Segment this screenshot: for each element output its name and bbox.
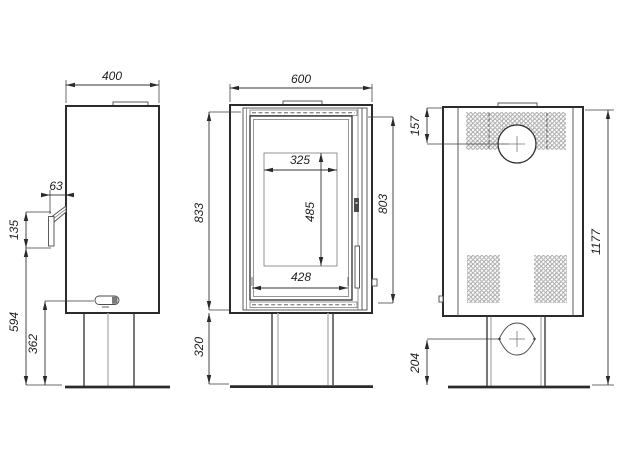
front-hinge-nub [372,279,377,286]
dim-back-total-height: 1177 [589,228,603,255]
dim-side-width-group: 400 [66,69,159,103]
dim-front-glass-width: 325 [290,153,310,167]
back-air-inlet [498,323,535,355]
front-view: 600 833 320 803 325 485 [192,72,393,387]
dim-front-door-width: 428 [291,270,311,284]
side-pedestal [84,313,134,386]
side-body [66,106,159,313]
dim-front-glass-height: 485 [303,202,317,222]
dim-front-width: 600 [291,72,311,86]
dim-back-inlet-height-group: 204 [408,339,499,385]
stove-technical-drawing: 400 63 135 594 362 [0,0,624,460]
dim-back-inlet-height: 204 [408,353,422,374]
front-pedestal [272,313,333,385]
dim-front-pedestal-height-group: 320 [192,313,229,384]
dim-side-handle-height-group: 135 [7,212,51,248]
drawing-page: 400 63 135 594 362 [0,0,624,460]
dim-side-handle-depth: 63 [49,179,63,193]
dim-back-flue-offset: 157 [408,115,422,136]
side-view: 400 63 135 594 362 [7,69,170,387]
dim-side-lever-to-floor: 362 [26,334,40,354]
dim-front-body-height: 833 [192,203,206,223]
dim-front-door-height: 803 [376,194,390,214]
back-lower-vent-right [534,255,567,303]
dim-side-handle-height: 135 [7,220,21,240]
back-latch-nub [439,296,443,302]
dim-back-total-height-group: 1177 [585,110,614,385]
back-lower-vent-left [467,255,500,303]
dim-side-handle-to-floor-group: 594 [7,248,62,385]
dim-front-width-group: 600 [230,72,372,102]
back-view: 157 204 1177 [408,103,614,387]
dim-side-handle-to-floor: 594 [7,312,21,332]
dim-side-width: 400 [102,69,122,83]
dim-front-pedestal-height: 320 [192,337,206,357]
side-door-handle [49,206,67,246]
